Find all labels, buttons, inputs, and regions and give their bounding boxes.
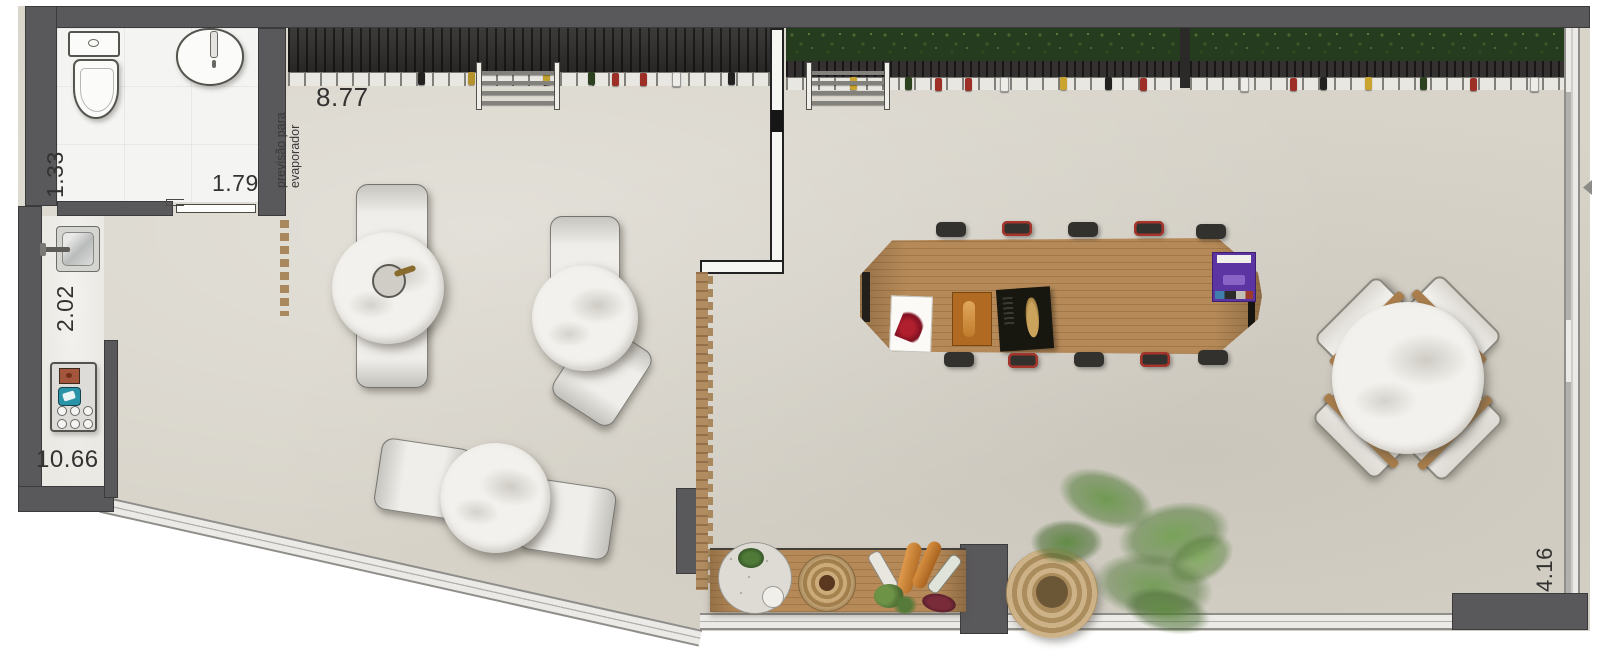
bar-stool — [1140, 352, 1170, 367]
bottle-icon — [588, 72, 595, 85]
orange-book — [952, 292, 992, 346]
bar-stool — [1198, 350, 1228, 365]
glass-mullion — [1566, 382, 1571, 604]
bottle-icon — [1000, 77, 1009, 92]
wood-slat-screen-edge — [708, 276, 713, 588]
evaporator-note-line1: previsão para — [274, 112, 288, 188]
partition-wall-return — [700, 260, 784, 274]
burner-knobs — [57, 406, 95, 432]
cooktop-red-module — [59, 368, 80, 384]
planter-box — [1190, 61, 1564, 77]
black-menu — [996, 286, 1054, 352]
dim-bathroom-width: 1.33 — [42, 151, 69, 198]
bottle-icon — [1530, 77, 1539, 92]
bottle-icon — [728, 72, 735, 85]
ladder — [806, 62, 890, 110]
bottle-icon — [1060, 77, 1067, 90]
bottle-icon — [1365, 77, 1372, 90]
module-glare — [62, 390, 76, 401]
bottom-right-pier — [1452, 593, 1588, 630]
bar-stool — [936, 222, 966, 237]
bottle-icon — [935, 78, 942, 91]
ladder — [476, 62, 560, 110]
basin-drain-icon — [212, 60, 216, 68]
bread-platter — [868, 540, 968, 614]
bottle-icon — [1140, 78, 1147, 91]
bar-stool — [1196, 224, 1226, 239]
hedge-planter — [1190, 28, 1564, 61]
burner-dot — [66, 373, 72, 378]
table-edge — [862, 272, 870, 322]
kitchenette-right-wall — [104, 340, 118, 498]
dim-left-side: 10.66 — [36, 446, 99, 474]
toilet-seat-line — [80, 68, 114, 112]
bottle-icon — [418, 72, 425, 85]
sliding-door — [176, 204, 256, 213]
evaporator-note-line2: evaporador — [288, 112, 302, 188]
wood-slat-screen — [696, 272, 708, 590]
bottle-icon — [1240, 77, 1249, 92]
basin-faucet-icon — [210, 31, 218, 58]
bottle-icon — [468, 72, 475, 85]
small-dish — [762, 586, 784, 608]
bar-stool — [1002, 221, 1032, 236]
bottle-icon — [612, 73, 619, 86]
hedge-planter — [786, 28, 1180, 61]
bathroom-bottom-wall — [57, 201, 173, 216]
bottle-icon — [1470, 78, 1477, 91]
cooktop-blue-module — [58, 387, 81, 406]
bottle-icon — [1420, 77, 1427, 90]
flush-button-icon — [88, 39, 99, 47]
bottle-icon — [1290, 78, 1297, 91]
dining-table-group — [1318, 292, 1498, 464]
bottle-icon — [672, 72, 681, 87]
bottle-icon — [1320, 77, 1327, 90]
floor-plan: 1.33 1.79 2.02 10.66 8.77 4.16 previsão … — [0, 0, 1599, 650]
planter-mullion — [1180, 28, 1190, 88]
bar-stool — [1134, 221, 1164, 236]
small-slat-screen — [280, 220, 289, 316]
partition-wall — [770, 28, 784, 272]
partition-junction — [771, 110, 783, 132]
bar-stool — [1008, 353, 1038, 368]
bottle-icon — [1105, 77, 1112, 90]
dim-kitchenette: 2.02 — [52, 285, 79, 332]
bar-stool — [1068, 222, 1098, 237]
dim-bathroom-door: 1.79 — [212, 170, 259, 197]
bottle-icon — [965, 78, 972, 91]
bottle-icon — [905, 77, 912, 90]
door-track — [166, 199, 184, 206]
greens-icon — [892, 596, 918, 614]
glass-mullion — [1566, 92, 1571, 320]
dim-top-bar: 8.77 — [316, 82, 369, 113]
plant-sprig-icon — [738, 548, 764, 568]
sink-faucet-icon — [42, 247, 70, 252]
bar-stool — [1074, 352, 1104, 367]
white-book — [889, 295, 933, 352]
woven-basket — [798, 554, 856, 612]
dim-right-side: 4.16 — [1532, 547, 1558, 592]
grapes-icon — [921, 591, 958, 615]
bottle-icon — [640, 73, 647, 86]
top-wall — [25, 6, 1590, 28]
purple-book — [1212, 252, 1256, 302]
faucet-handle-icon — [40, 243, 46, 256]
bottom-left-corner-wall — [18, 486, 114, 512]
marble-table — [1332, 302, 1484, 454]
evaporator-note: previsão para evaporador — [274, 112, 302, 188]
bar-stool — [944, 352, 974, 367]
marble-table — [532, 265, 638, 371]
